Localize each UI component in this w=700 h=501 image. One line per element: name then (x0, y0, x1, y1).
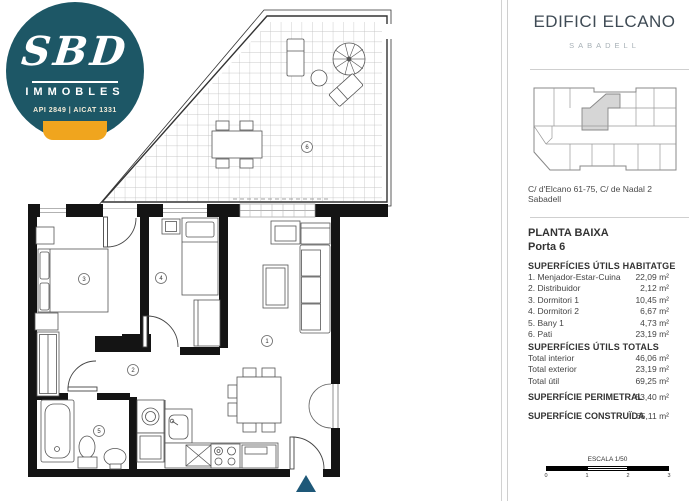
bathroom-furniture (41, 400, 126, 469)
room-label-2: 2 (128, 365, 139, 376)
totals-heading: SUPERFÍCIES ÚTILS TOTALS (528, 342, 659, 352)
scale-segment (587, 466, 628, 471)
total-row: Total exterior 23,19 m² (528, 364, 669, 374)
total-row: Total interior 46,06 m² (528, 353, 669, 363)
toilet (78, 436, 97, 468)
round-table (311, 70, 327, 86)
single-bed (182, 218, 218, 295)
panel-divider (501, 0, 502, 501)
nightstand (36, 227, 54, 244)
surface-row: 1. Menjador-Estar-Cuina 22,09 m² (528, 272, 669, 282)
divider (530, 217, 689, 218)
construida-row: SUPERFÍCIE CONSTRUÏDA 65,11 m² (528, 411, 669, 421)
terrace-door-opening (103, 204, 137, 217)
surface-row: 2. Distribuidor 2,12 m² (528, 283, 669, 293)
surface-row: 4. Dormitori 2 6,67 m² (528, 306, 669, 316)
logo-credentials: API 2849 | AICAT 1331 (6, 107, 144, 114)
scale-segment (628, 466, 669, 471)
entrance-door (290, 437, 324, 469)
surface-row: 6. Pati 23,19 m² (528, 329, 669, 339)
dresser (35, 313, 58, 330)
fridge (242, 445, 276, 468)
agency-logo: SBD IMMOBLES API 2849 | AICAT 1331 (6, 2, 144, 140)
floor-name: PLANTA BAIXA (528, 227, 609, 239)
building-city: SABADELL (508, 41, 700, 50)
stove (211, 444, 240, 468)
terrace-gate (385, 24, 392, 39)
room-label-6: 6 (302, 142, 313, 153)
desk (194, 300, 220, 346)
logo-subtitle: IMMOBLES (6, 86, 144, 98)
armchair (271, 221, 300, 244)
total-row: Total útil 69,25 m² (528, 376, 669, 386)
kitchen-sink (165, 409, 192, 443)
logo-accent-bar (43, 121, 107, 140)
cabinet (301, 223, 330, 244)
floorplan-sheet: 1 2 3 4 5 6 (0, 0, 700, 501)
bedroom1-window (40, 204, 66, 217)
wall-niche (309, 384, 340, 428)
perimetral-row: SUPERFÍCIE PERIMETRAL 53,40 m² (528, 392, 669, 402)
address-line1: C/ d'Elcano 61-75, C/ de Nadal 2 (528, 184, 652, 194)
wardrobe (37, 332, 59, 396)
entrance-marker (296, 475, 316, 492)
washing-machine (137, 400, 164, 433)
bathroom-door (68, 361, 97, 391)
room-label-3: 3 (79, 274, 90, 285)
bathroom-sink (104, 449, 126, 470)
dining-table (228, 368, 281, 432)
info-sidebar: EDIFICI ELCANO SABADELL C/ d'Elcano 61-7… (507, 0, 700, 501)
room-label-4: 4 (156, 273, 167, 284)
coffee-table (263, 265, 288, 308)
logo-brand: SBD (4, 28, 147, 75)
sofa (300, 245, 330, 333)
scale-bar (546, 466, 669, 471)
dishwasher (186, 445, 211, 466)
room-label-5: 5 (94, 426, 105, 437)
shelf (162, 219, 180, 234)
spiral-staircase (333, 43, 365, 75)
living-slider-door (240, 204, 315, 217)
sun-lounger (287, 39, 304, 76)
address: C/ d'Elcano 61-75, C/ de Nadal 2 Sabadel… (528, 184, 652, 204)
living-furniture (228, 221, 330, 432)
surface-row: 5. Bany 1 4,73 m² (528, 318, 669, 328)
double-bed (38, 249, 108, 312)
bathtub (41, 400, 74, 462)
bedroom2-window (163, 204, 207, 217)
address-line2: Sabadell (528, 194, 652, 204)
scale-segment (546, 466, 587, 471)
building-title: EDIFICI ELCANO (508, 12, 700, 32)
surface-row: 3. Dormitori 1 10,45 m² (528, 295, 669, 305)
terrace-door (104, 217, 137, 247)
entrance-opening (290, 469, 323, 477)
habitatge-heading: SUPERFÍCIES ÚTILS HABITATGE (528, 261, 676, 271)
bedroom1-furniture (35, 227, 108, 396)
site-plan-map (526, 82, 684, 180)
logo-divider (32, 81, 118, 83)
scale-label: ESCALA 1/50 (546, 456, 669, 463)
appliance-column (137, 433, 164, 462)
divider (530, 69, 689, 70)
room-label-1: 1 (262, 336, 273, 347)
door-name: Porta 6 (528, 241, 565, 253)
